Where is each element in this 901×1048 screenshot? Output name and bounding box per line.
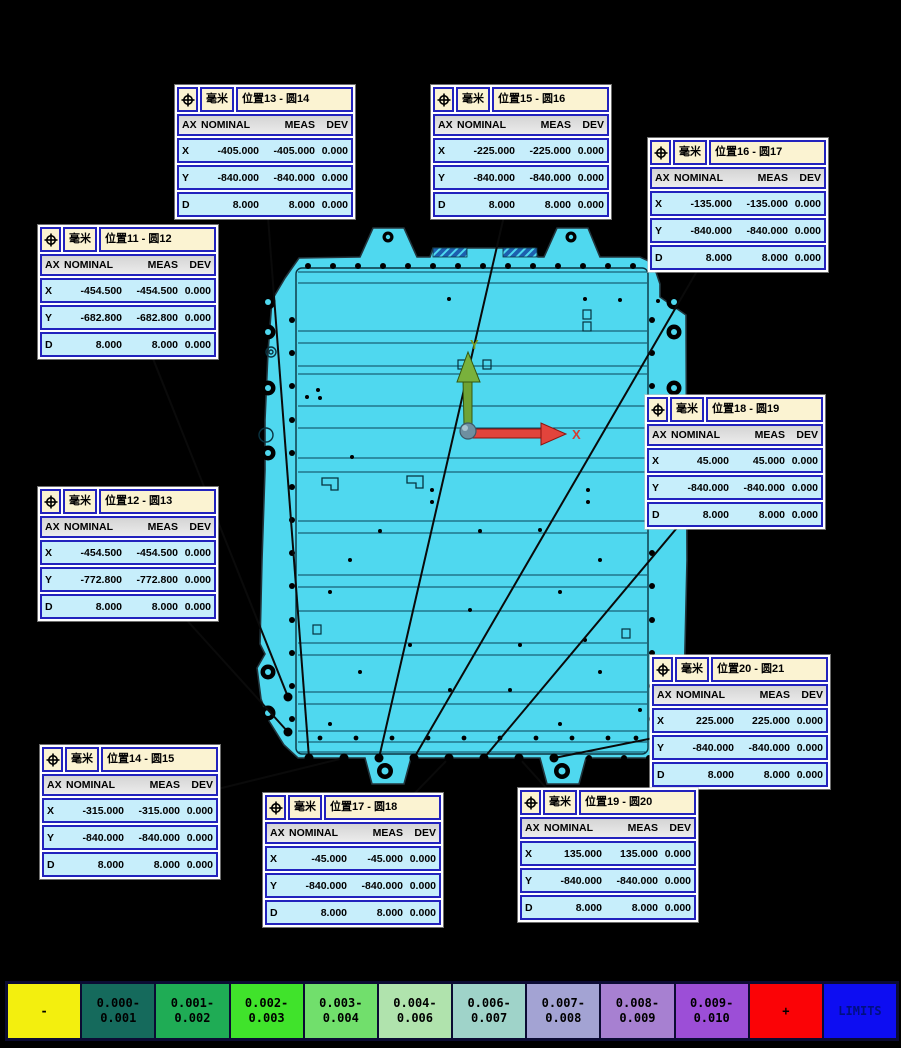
- column-header: AX: [522, 822, 544, 834]
- unit-label: 毫米: [63, 227, 97, 252]
- measurement-value: 8.000: [602, 902, 658, 914]
- measurement-value: -840.000: [674, 225, 732, 237]
- measurement-value: -840.000: [124, 832, 180, 844]
- measurement-value: 0.000: [788, 252, 824, 264]
- measurement-value: 0.000: [788, 198, 824, 210]
- measurement-value: 8.000: [122, 339, 178, 351]
- x-axis-label: X: [572, 427, 581, 442]
- unit-label: 毫米: [673, 140, 707, 165]
- measurement-value: Y: [44, 832, 66, 844]
- feature-title: 位置20 - 圆21: [711, 657, 828, 682]
- unit-label: 毫米: [456, 87, 490, 112]
- measurement-value: D: [44, 859, 66, 871]
- measurement-value: -840.000: [732, 225, 788, 237]
- measurement-value: X: [652, 198, 674, 210]
- measurement-value: X: [44, 805, 66, 817]
- column-header: NOMINAL: [457, 119, 515, 131]
- measurement-value: Y: [652, 225, 674, 237]
- legend-cell: 0.004- 0.006: [379, 984, 451, 1038]
- measurement-row: X45.00045.0000.000: [647, 448, 823, 473]
- measurement-value: 0.000: [403, 853, 439, 865]
- measurement-value: 0.000: [180, 859, 216, 871]
- column-header-row: AX NOMINAL MEAS DEV: [177, 114, 353, 136]
- legend-cell: 0.001- 0.002: [156, 984, 228, 1038]
- measurement-value: X: [522, 848, 544, 860]
- feature-title: 位置16 - 圆17: [709, 140, 826, 165]
- measurement-value: Y: [42, 574, 64, 586]
- column-header: NOMINAL: [289, 827, 347, 839]
- column-header: MEAS: [734, 689, 790, 701]
- measurement-value: 8.000: [729, 509, 785, 521]
- column-header: AX: [42, 259, 64, 271]
- position-symbol-icon: [40, 489, 61, 514]
- unit-label: 毫米: [670, 397, 704, 422]
- measurement-row: D8.0008.0000.000: [520, 895, 696, 920]
- feature-title: 位置19 - 圆20: [579, 790, 696, 815]
- measurement-point: [375, 754, 384, 763]
- measurement-value: -135.000: [732, 198, 788, 210]
- measurement-row: X-225.000-225.0000.000: [433, 138, 609, 163]
- measurement-value: -840.000: [676, 742, 734, 754]
- measurement-row: X-135.000-135.0000.000: [650, 191, 826, 216]
- column-header-row: AX NOMINAL MEAS DEV: [650, 167, 826, 189]
- column-header: MEAS: [602, 822, 658, 834]
- unit-label: 毫米: [63, 489, 97, 514]
- measurement-value: -840.000: [66, 832, 124, 844]
- report-canvas: Y X 毫米 位置13 - 圆14 AX NOMINAL MEAS: [0, 0, 901, 1048]
- origin-ball-highlight: [462, 425, 468, 431]
- flag-header-row: 毫米 位置20 - 圆21: [652, 657, 828, 682]
- measurement-flag[interactable]: 毫米 位置19 - 圆20 AX NOMINAL MEAS DEV X135.0…: [518, 788, 698, 922]
- measurement-row: X135.000135.0000.000: [520, 841, 696, 866]
- measurement-value: -225.000: [457, 145, 515, 157]
- measurement-value: D: [654, 769, 676, 781]
- measurement-value: -840.000: [544, 875, 602, 887]
- measurement-value: 8.000: [66, 859, 124, 871]
- measurement-flag[interactable]: 毫米 位置11 - 圆12 AX NOMINAL MEAS DEV X-454.…: [38, 225, 218, 359]
- column-header-row: AX NOMINAL MEAS DEV: [652, 684, 828, 706]
- measurement-value: Y: [649, 482, 671, 494]
- measurement-value: Y: [267, 880, 289, 892]
- flag-header-row: 毫米 位置17 - 圆18: [265, 795, 441, 820]
- column-header-row: AX NOMINAL MEAS DEV: [40, 516, 216, 538]
- column-header-row: AX NOMINAL MEAS DEV: [520, 817, 696, 839]
- column-header: AX: [179, 119, 201, 131]
- flag-header-row: 毫米 位置15 - 圆16: [433, 87, 609, 112]
- measurement-row: Y-772.800-772.8000.000: [40, 567, 216, 592]
- cad-part: [257, 228, 687, 784]
- measurement-row: D8.0008.0000.000: [177, 192, 353, 217]
- column-header: DEV: [403, 827, 439, 839]
- measurement-value: -225.000: [515, 145, 571, 157]
- feature-title: 位置15 - 圆16: [492, 87, 609, 112]
- feature-title: 位置12 - 圆13: [99, 489, 216, 514]
- column-header: DEV: [785, 429, 821, 441]
- measurement-flag[interactable]: 毫米 位置12 - 圆13 AX NOMINAL MEAS DEV X-454.…: [38, 487, 218, 621]
- measurement-value: -682.800: [122, 312, 178, 324]
- position-symbol-icon: [647, 397, 668, 422]
- measurement-value: X: [435, 145, 457, 157]
- feature-title: 位置17 - 圆18: [324, 795, 441, 820]
- measurement-value: -454.500: [122, 285, 178, 297]
- measurement-flag[interactable]: 毫米 位置14 - 圆15 AX NOMINAL MEAS DEV X-315.…: [40, 745, 220, 879]
- origin-ball: [460, 423, 476, 439]
- measurement-value: D: [649, 509, 671, 521]
- measurement-value: 0.000: [178, 574, 214, 586]
- measurement-value: D: [652, 252, 674, 264]
- measurement-value: 0.000: [658, 848, 694, 860]
- deviation-legend: -0.000- 0.0010.001- 0.0020.002- 0.0030.0…: [5, 981, 899, 1041]
- part-outline: [257, 228, 687, 784]
- measurement-value: -840.000: [602, 875, 658, 887]
- measurement-row: X-405.000-405.0000.000: [177, 138, 353, 163]
- measurement-value: -840.000: [289, 880, 347, 892]
- measurement-value: D: [42, 601, 64, 613]
- measurement-value: 0.000: [571, 199, 607, 211]
- measurement-value: -454.500: [64, 547, 122, 559]
- measurement-value: -840.000: [201, 172, 259, 184]
- measurement-value: 0.000: [178, 285, 214, 297]
- legend-cell: 0.006- 0.007: [453, 984, 525, 1038]
- feature-title: 位置18 - 圆19: [706, 397, 823, 422]
- position-symbol-icon: [42, 747, 63, 772]
- feature-title: 位置13 - 圆14: [236, 87, 353, 112]
- x-axis-arrow: [469, 429, 542, 438]
- column-header: MEAS: [515, 119, 571, 131]
- measurement-point: [284, 693, 293, 702]
- measurement-row: X-45.000-45.0000.000: [265, 846, 441, 871]
- measurement-value: -405.000: [259, 145, 315, 157]
- legend-cell: +: [750, 984, 822, 1038]
- y-axis-label: Y: [470, 337, 479, 352]
- measurement-value: D: [522, 902, 544, 914]
- measurement-row: Y-840.000-840.0000.000: [42, 825, 218, 850]
- measurement-value: 8.000: [64, 601, 122, 613]
- column-header: DEV: [790, 689, 826, 701]
- column-header: DEV: [180, 779, 216, 791]
- measurement-row: X-315.000-315.0000.000: [42, 798, 218, 823]
- measurement-value: -840.000: [729, 482, 785, 494]
- flag-header-row: 毫米 位置12 - 圆13: [40, 489, 216, 514]
- measurement-value: -840.000: [347, 880, 403, 892]
- measurement-value: X: [654, 715, 676, 727]
- feature-title: 位置11 - 圆12: [99, 227, 216, 252]
- measurement-value: 8.000: [347, 907, 403, 919]
- measurement-value: 0.000: [178, 312, 214, 324]
- y-axis-arrow: [463, 380, 472, 425]
- measurement-value: Y: [654, 742, 676, 754]
- measurement-value: -840.000: [515, 172, 571, 184]
- column-header: MEAS: [732, 172, 788, 184]
- measurement-value: -840.000: [671, 482, 729, 494]
- legend-cell: 0.007- 0.008: [527, 984, 599, 1038]
- measurement-row: D8.0008.0000.000: [265, 900, 441, 925]
- measurement-value: -840.000: [734, 742, 790, 754]
- column-header: MEAS: [347, 827, 403, 839]
- measurement-row: Y-840.000-840.0000.000: [177, 165, 353, 190]
- measurement-value: 0.000: [790, 769, 826, 781]
- position-symbol-icon: [650, 140, 671, 165]
- measurement-value: 135.000: [544, 848, 602, 860]
- position-symbol-icon: [433, 87, 454, 112]
- column-header-row: AX NOMINAL MEAS DEV: [42, 774, 218, 796]
- measurement-value: 0.000: [178, 339, 214, 351]
- column-header: AX: [435, 119, 457, 131]
- measurement-value: 225.000: [676, 715, 734, 727]
- measurement-row: X-454.500-454.5000.000: [40, 540, 216, 565]
- flag-header-row: 毫米 位置19 - 圆20: [520, 790, 696, 815]
- column-header: MEAS: [729, 429, 785, 441]
- measurement-value: D: [179, 199, 201, 211]
- measurement-value: 0.000: [403, 907, 439, 919]
- measurement-flag[interactable]: 毫米 位置13 - 圆14 AX NOMINAL MEAS DEV X-405.…: [175, 85, 355, 219]
- legend-cell: 0.008- 0.009: [601, 984, 673, 1038]
- measurement-value: -454.500: [122, 547, 178, 559]
- measurement-value: 135.000: [602, 848, 658, 860]
- measurement-value: X: [649, 455, 671, 467]
- measurement-value: -405.000: [201, 145, 259, 157]
- measurement-value: 8.000: [64, 339, 122, 351]
- position-symbol-icon: [265, 795, 286, 820]
- measurement-value: X: [179, 145, 201, 157]
- column-header: NOMINAL: [544, 822, 602, 834]
- measurement-value: 8.000: [674, 252, 732, 264]
- measurement-value: X: [42, 547, 64, 559]
- measurement-value: 8.000: [201, 199, 259, 211]
- measurement-value: -772.800: [122, 574, 178, 586]
- legend-cell: -: [8, 984, 80, 1038]
- measurement-row: Y-840.000-840.0000.000: [652, 735, 828, 760]
- measurement-value: 0.000: [785, 509, 821, 521]
- measurement-row: D8.0008.0000.000: [433, 192, 609, 217]
- hatched-block: [503, 248, 537, 257]
- column-header: AX: [267, 827, 289, 839]
- position-symbol-icon: [177, 87, 198, 112]
- measurement-value: 8.000: [457, 199, 515, 211]
- measurement-value: 8.000: [732, 252, 788, 264]
- measurement-value: 0.000: [315, 172, 351, 184]
- column-header: NOMINAL: [671, 429, 729, 441]
- measurement-value: -454.500: [64, 285, 122, 297]
- measurement-value: 0.000: [180, 832, 216, 844]
- measurement-value: 8.000: [124, 859, 180, 871]
- column-header: DEV: [571, 119, 607, 131]
- column-header: AX: [654, 689, 676, 701]
- measurement-flag[interactable]: 毫米 位置16 - 圆17 AX NOMINAL MEAS DEV X-135.…: [648, 138, 828, 272]
- measurement-row: D8.0008.0000.000: [652, 762, 828, 787]
- column-header: DEV: [788, 172, 824, 184]
- measurement-value: 8.000: [122, 601, 178, 613]
- measurement-point: [480, 754, 489, 763]
- unit-label: 毫米: [288, 795, 322, 820]
- measurement-flag[interactable]: 毫米 位置17 - 圆18 AX NOMINAL MEAS DEV X-45.0…: [263, 793, 443, 927]
- measurement-value: -315.000: [66, 805, 124, 817]
- column-header-row: AX NOMINAL MEAS DEV: [647, 424, 823, 446]
- legend-cell: 0.002- 0.003: [231, 984, 303, 1038]
- column-header: DEV: [658, 822, 694, 834]
- feature-title: 位置14 - 圆15: [101, 747, 218, 772]
- column-header: AX: [652, 172, 674, 184]
- measurement-row: Y-840.000-840.0000.000: [265, 873, 441, 898]
- measurement-value: 0.000: [658, 902, 694, 914]
- measurement-point: [340, 754, 349, 763]
- column-header: AX: [649, 429, 671, 441]
- flag-header-row: 毫米 位置11 - 圆12: [40, 227, 216, 252]
- unit-label: 毫米: [200, 87, 234, 112]
- measurement-point: [410, 754, 419, 763]
- column-header: DEV: [178, 259, 214, 271]
- measurement-value: 0.000: [178, 601, 214, 613]
- measurement-value: 8.000: [671, 509, 729, 521]
- flag-header-row: 毫米 位置18 - 圆19: [647, 397, 823, 422]
- measurement-value: -135.000: [674, 198, 732, 210]
- measurement-value: 8.000: [515, 199, 571, 211]
- measurement-value: D: [42, 339, 64, 351]
- measurement-value: -772.800: [64, 574, 122, 586]
- column-header: MEAS: [259, 119, 315, 131]
- measurement-value: 0.000: [790, 715, 826, 727]
- measurement-point: [284, 728, 293, 737]
- measurement-value: Y: [435, 172, 457, 184]
- measurement-value: -315.000: [124, 805, 180, 817]
- measurement-point: [550, 754, 559, 763]
- measurement-flag[interactable]: 毫米 位置18 - 圆19 AX NOMINAL MEAS DEV X45.00…: [645, 395, 825, 529]
- measurement-value: 0.000: [403, 880, 439, 892]
- measurement-point: [305, 754, 314, 763]
- measurement-point: [515, 754, 524, 763]
- column-header: NOMINAL: [66, 779, 124, 791]
- column-header: NOMINAL: [674, 172, 732, 184]
- flag-header-row: 毫米 位置13 - 圆14: [177, 87, 353, 112]
- measurement-point: [445, 754, 454, 763]
- measurement-flag[interactable]: 毫米 位置15 - 圆16 AX NOMINAL MEAS DEV X-225.…: [431, 85, 611, 219]
- measurement-value: X: [42, 285, 64, 297]
- column-header-row: AX NOMINAL MEAS DEV: [265, 822, 441, 844]
- measurement-value: 0.000: [785, 482, 821, 494]
- measurement-row: D8.0008.0000.000: [647, 502, 823, 527]
- unit-label: 毫米: [675, 657, 709, 682]
- measurement-row: Y-840.000-840.0000.000: [520, 868, 696, 893]
- measurement-value: -45.000: [347, 853, 403, 865]
- measurement-row: D8.0008.0000.000: [40, 332, 216, 357]
- measurement-row: X225.000225.0000.000: [652, 708, 828, 733]
- measurement-value: 8.000: [259, 199, 315, 211]
- measurement-value: 0.000: [571, 145, 607, 157]
- measurement-value: Y: [179, 172, 201, 184]
- measurement-value: 0.000: [571, 172, 607, 184]
- column-header: MEAS: [122, 521, 178, 533]
- measurement-value: 0.000: [658, 875, 694, 887]
- measurement-row: Y-682.800-682.8000.000: [40, 305, 216, 330]
- position-symbol-icon: [652, 657, 673, 682]
- column-header: NOMINAL: [64, 259, 122, 271]
- legend-cell: LIMITS: [824, 984, 896, 1038]
- column-header: NOMINAL: [64, 521, 122, 533]
- position-symbol-icon: [40, 227, 61, 252]
- measurement-row: X-454.500-454.5000.000: [40, 278, 216, 303]
- column-header: DEV: [178, 521, 214, 533]
- measurement-row: D8.0008.0000.000: [42, 852, 218, 877]
- measurement-value: 0.000: [790, 742, 826, 754]
- column-header: MEAS: [124, 779, 180, 791]
- column-header: NOMINAL: [676, 689, 734, 701]
- column-header: AX: [42, 521, 64, 533]
- measurement-value: -682.800: [64, 312, 122, 324]
- measurement-row: Y-840.000-840.0000.000: [647, 475, 823, 500]
- position-symbol-icon: [520, 790, 541, 815]
- legend-cell: 0.003- 0.004: [305, 984, 377, 1038]
- measurement-value: 8.000: [676, 769, 734, 781]
- column-header-row: AX NOMINAL MEAS DEV: [433, 114, 609, 136]
- measurement-value: 45.000: [671, 455, 729, 467]
- column-header-row: AX NOMINAL MEAS DEV: [40, 254, 216, 276]
- measurement-value: D: [435, 199, 457, 211]
- legend-cell: 0.000- 0.001: [82, 984, 154, 1038]
- measurement-flag[interactable]: 毫米 位置20 - 圆21 AX NOMINAL MEAS DEV X225.0…: [650, 655, 830, 789]
- measurement-row: Y-840.000-840.0000.000: [433, 165, 609, 190]
- flag-header-row: 毫米 位置16 - 圆17: [650, 140, 826, 165]
- measurement-value: Y: [42, 312, 64, 324]
- hatched-block: [433, 248, 467, 257]
- unit-label: 毫米: [65, 747, 99, 772]
- measurement-value: 45.000: [729, 455, 785, 467]
- measurement-value: 8.000: [289, 907, 347, 919]
- legend-cell: 0.009- 0.010: [676, 984, 748, 1038]
- flag-header-row: 毫米 位置14 - 圆15: [42, 747, 218, 772]
- measurement-value: Y: [522, 875, 544, 887]
- measurement-value: 0.000: [785, 455, 821, 467]
- measurement-value: -840.000: [259, 172, 315, 184]
- measurement-value: -45.000: [289, 853, 347, 865]
- measurement-value: D: [267, 907, 289, 919]
- measurement-value: 8.000: [734, 769, 790, 781]
- measurement-value: X: [267, 853, 289, 865]
- measurement-value: 0.000: [180, 805, 216, 817]
- column-header: DEV: [315, 119, 351, 131]
- measurement-value: -840.000: [457, 172, 515, 184]
- measurement-value: 8.000: [544, 902, 602, 914]
- measurement-row: D8.0008.0000.000: [40, 594, 216, 619]
- measurement-row: D8.0008.0000.000: [650, 245, 826, 270]
- measurement-row: Y-840.000-840.0000.000: [650, 218, 826, 243]
- column-header: NOMINAL: [201, 119, 259, 131]
- measurement-value: 225.000: [734, 715, 790, 727]
- unit-label: 毫米: [543, 790, 577, 815]
- column-header: MEAS: [122, 259, 178, 271]
- measurement-value: 0.000: [315, 199, 351, 211]
- measurement-value: 0.000: [178, 547, 214, 559]
- column-header: AX: [44, 779, 66, 791]
- measurement-value: 0.000: [315, 145, 351, 157]
- measurement-value: 0.000: [788, 225, 824, 237]
